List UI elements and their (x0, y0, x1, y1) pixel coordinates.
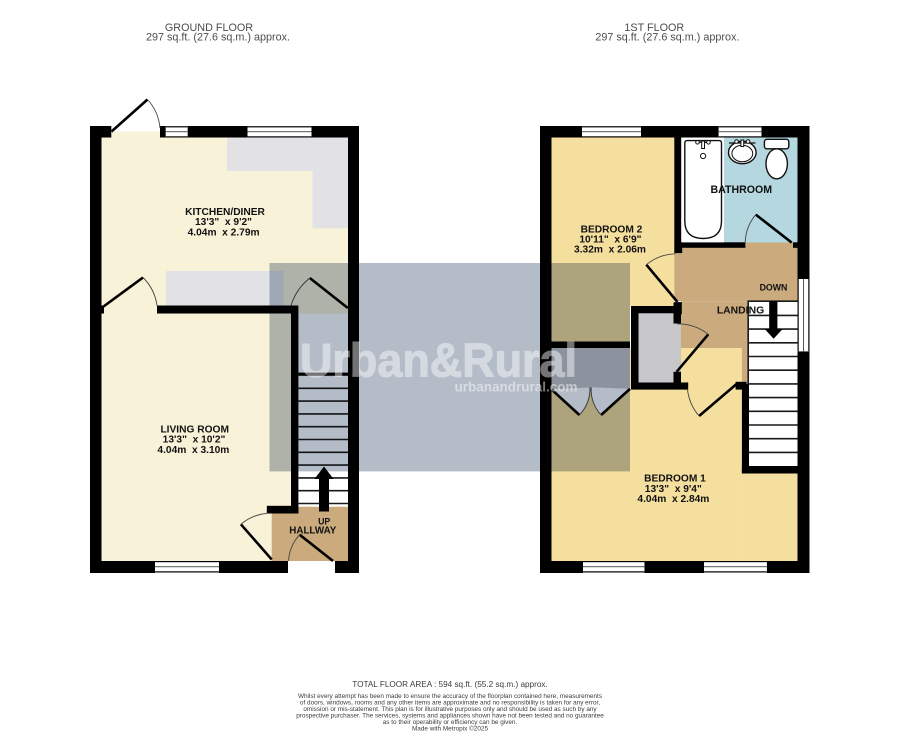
svg-text:4.04m x 3.10m: 4.04m x 3.10m (157, 445, 229, 456)
svg-text:LANDING: LANDING (717, 305, 764, 316)
svg-text:4.04m x 2.84m: 4.04m x 2.84m (637, 494, 709, 505)
svg-text:TOTAL FLOOR AREA : 594 sq.ft.: TOTAL FLOOR AREA : 594 sq.ft. (55.2 sq.m… (352, 680, 548, 689)
svg-text:3.32m x 2.06m: 3.32m x 2.06m (574, 245, 646, 256)
svg-text:297 sq.ft. (27.6 sq.m.) approx: 297 sq.ft. (27.6 sq.m.) approx. (146, 32, 290, 44)
svg-text:HALLWAY: HALLWAY (289, 525, 336, 536)
svg-text:DOWN: DOWN (760, 282, 788, 292)
svg-text:BATHROOM: BATHROOM (711, 184, 773, 196)
svg-text:urbanandrural.com: urbanandrural.com (454, 380, 577, 395)
svg-text:297 sq.ft. (27.6 sq.m.) approx: 297 sq.ft. (27.6 sq.m.) approx. (595, 32, 739, 44)
svg-text:Made with Metropix ©2025: Made with Metropix ©2025 (412, 725, 489, 733)
svg-text:4.04m x 2.79m: 4.04m x 2.79m (188, 227, 260, 238)
